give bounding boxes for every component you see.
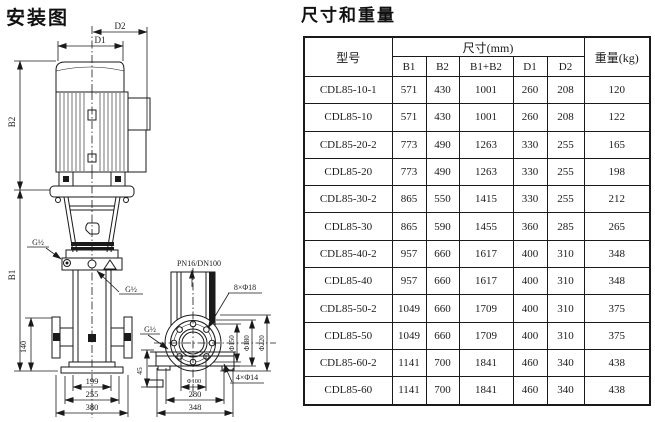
table-row: CDL85-40 957 660 1617 400 310 348 (304, 268, 650, 295)
dim-cell: 208 (547, 104, 584, 131)
weight-cell: 438 (584, 349, 650, 376)
dim-cell: 660 (426, 268, 459, 295)
dim-label-255: 255 (86, 389, 99, 399)
model-cell: CDL85-10 (304, 104, 392, 131)
dim-label-45: 45 (135, 367, 144, 375)
dim-cell: 330 (513, 186, 547, 213)
dim-cell: 430 (426, 77, 459, 104)
dim-cell: 260 (513, 104, 547, 131)
dim-cell: 310 (547, 268, 584, 295)
dim-cell: 1841 (459, 377, 513, 405)
dim-cell: 340 (547, 349, 584, 376)
port-label-g-top: G½ (32, 238, 44, 247)
dim-cell: 330 (513, 131, 547, 158)
port-label-g-side: G½ (144, 325, 156, 334)
dim-cell: 310 (547, 295, 584, 322)
weight-cell: 375 (584, 322, 650, 349)
dim-cell: 700 (426, 349, 459, 376)
flange-bolts-label: 8×Φ18 (234, 283, 256, 292)
table-row: CDL85-10 571 430 1001 260 208 122 (304, 104, 650, 131)
model-cell: CDL85-50-2 (304, 295, 392, 322)
dim-cell: 1001 (459, 104, 513, 131)
dim-cell: 460 (513, 349, 547, 376)
dim-cell: 400 (513, 322, 547, 349)
dim-cell: 310 (547, 240, 584, 267)
dim-cell: 310 (547, 322, 584, 349)
dim-cell: 208 (547, 77, 584, 104)
dim-cell: 255 (547, 131, 584, 158)
model-cell: CDL85-30 (304, 213, 392, 240)
dim-cell: 1141 (392, 377, 426, 405)
dim-label-380: 380 (86, 402, 99, 412)
dim-cell: 460 (513, 377, 547, 405)
table-row: CDL85-30 865 590 1455 360 285 265 (304, 213, 650, 240)
dim-cell: 1841 (459, 349, 513, 376)
table-row: CDL85-20-2 773 490 1263 330 255 165 (304, 131, 650, 158)
model-cell: CDL85-20-2 (304, 131, 392, 158)
dim-cell: 957 (392, 240, 426, 267)
dim-cell: 260 (513, 77, 547, 104)
dim-label-phi150: Φ150 (228, 335, 236, 351)
table-row: CDL85-50 1049 660 1709 400 310 375 (304, 322, 650, 349)
dim-label-phi220: Φ220 (258, 335, 266, 351)
dim-cell: 1049 (392, 295, 426, 322)
port-label-g-mid: G½ (125, 285, 137, 294)
gauge-port (88, 260, 96, 268)
dim-cell: 550 (426, 186, 459, 213)
dim-cell: 773 (392, 158, 426, 185)
dim-cell: 1617 (459, 240, 513, 267)
model-cell: CDL85-30-2 (304, 186, 392, 213)
dim-label-d1: D1 (95, 35, 106, 45)
dim-cell: 490 (426, 131, 459, 158)
table-row: CDL85-30-2 865 550 1415 330 255 212 (304, 186, 650, 213)
dim-cell: 400 (513, 268, 547, 295)
weight-cell: 198 (584, 158, 650, 185)
weight-cell: 348 (584, 268, 650, 295)
dim-label-199: 199 (86, 376, 99, 386)
header-model: 型号 (304, 37, 392, 77)
dim-cell: 340 (547, 377, 584, 405)
header-weight: 重量(kg) (584, 37, 650, 77)
model-cell: CDL85-40-2 (304, 240, 392, 267)
weight-cell: 348 (584, 240, 650, 267)
model-cell: CDL85-60-2 (304, 349, 392, 376)
dimensions-weight-title: 尺寸和重量 (301, 1, 396, 26)
dim-cell: 255 (547, 158, 584, 185)
dim-cell: 1455 (459, 213, 513, 240)
dim-cell: 255 (547, 186, 584, 213)
weight-cell: 265 (584, 213, 650, 240)
dim-cell: 1263 (459, 131, 513, 158)
weight-cell: 438 (584, 377, 650, 405)
dim-cell: 1263 (459, 158, 513, 185)
model-cell: CDL85-50 (304, 322, 392, 349)
catalog-page: { "page": { "background": "#ffffff", "in… (0, 0, 655, 422)
table-row: CDL85-10-1 571 430 1001 260 208 120 (304, 77, 650, 104)
header-b1b2: B1+B2 (459, 57, 513, 77)
dim-cell: 700 (426, 377, 459, 405)
dim-cell: 430 (426, 104, 459, 131)
table-row: CDL85-20 773 490 1263 330 255 198 (304, 158, 650, 185)
header-dimensions-group: 尺寸(mm) (392, 37, 584, 57)
dim-cell: 360 (513, 213, 547, 240)
dim-cell: 400 (513, 295, 547, 322)
header-d2: D2 (547, 57, 584, 77)
dim-cell: 571 (392, 104, 426, 131)
dim-cell: 1415 (459, 186, 513, 213)
model-cell: CDL85-10-1 (304, 77, 392, 104)
dimension-labels: D2 D1 B2 B1 140 199 255 380 G½ G½ G½ PN1… (7, 21, 266, 412)
dim-cell: 773 (392, 131, 426, 158)
weight-cell: 122 (584, 104, 650, 131)
dim-label-phi100: Φ100 (187, 378, 202, 385)
model-cell: CDL85-40 (304, 268, 392, 295)
dim-cell: 1001 (459, 77, 513, 104)
weight-cell: 212 (584, 186, 650, 213)
dim-cell: 1617 (459, 268, 513, 295)
header-b1: B1 (392, 57, 426, 77)
model-cell: CDL85-20 (304, 158, 392, 185)
dim-cell: 1709 (459, 322, 513, 349)
dim-cell: 660 (426, 295, 459, 322)
dim-cell: 400 (513, 240, 547, 267)
header-b2: B2 (426, 57, 459, 77)
dim-cell: 865 (392, 213, 426, 240)
dim-cell: 660 (426, 240, 459, 267)
dim-cell: 1709 (459, 295, 513, 322)
spec-table-container: 型号 尺寸(mm) 重量(kg) B1 B2 B1+B2 D1 D2 CDL85… (303, 36, 651, 406)
table-row: CDL85-60 1141 700 1841 460 340 438 (304, 377, 650, 405)
dim-label-phi180: Φ180 (243, 335, 251, 351)
base-bolts-label: 4×Φ14 (236, 373, 258, 382)
header-d1: D1 (513, 57, 547, 77)
model-cell: CDL85-60 (304, 377, 392, 405)
dim-label-b1: B1 (7, 270, 17, 281)
dim-cell: 490 (426, 158, 459, 185)
dim-cell: 865 (392, 186, 426, 213)
weight-cell: 165 (584, 131, 650, 158)
pump-front-view (50, 26, 150, 418)
dim-cell: 590 (426, 213, 459, 240)
pump-installation-drawing: D2 D1 B2 B1 140 199 255 380 G½ G½ G½ PN1… (0, 0, 300, 422)
dim-cell: 957 (392, 268, 426, 295)
dim-label-348: 348 (189, 402, 202, 412)
table-row: CDL85-40-2 957 660 1617 400 310 348 (304, 240, 650, 267)
dim-label-140: 140 (19, 341, 28, 353)
dim-cell: 660 (426, 322, 459, 349)
spec-table: 型号 尺寸(mm) 重量(kg) B1 B2 B1+B2 D1 D2 CDL85… (303, 36, 651, 406)
dim-cell: 1049 (392, 322, 426, 349)
table-row: CDL85-60-2 1141 700 1841 460 340 438 (304, 349, 650, 376)
dim-cell: 571 (392, 77, 426, 104)
dim-cell: 330 (513, 158, 547, 185)
dim-label-280: 280 (189, 389, 202, 399)
weight-cell: 375 (584, 295, 650, 322)
weight-cell: 120 (584, 77, 650, 104)
dim-cell: 285 (547, 213, 584, 240)
dim-label-b2: B2 (7, 117, 17, 128)
dim-cell: 1141 (392, 349, 426, 376)
table-row: CDL85-50-2 1049 660 1709 400 310 375 (304, 295, 650, 322)
flange-rating-label: PN16/DN100 (177, 259, 221, 268)
dim-label-d2: D2 (115, 21, 126, 31)
